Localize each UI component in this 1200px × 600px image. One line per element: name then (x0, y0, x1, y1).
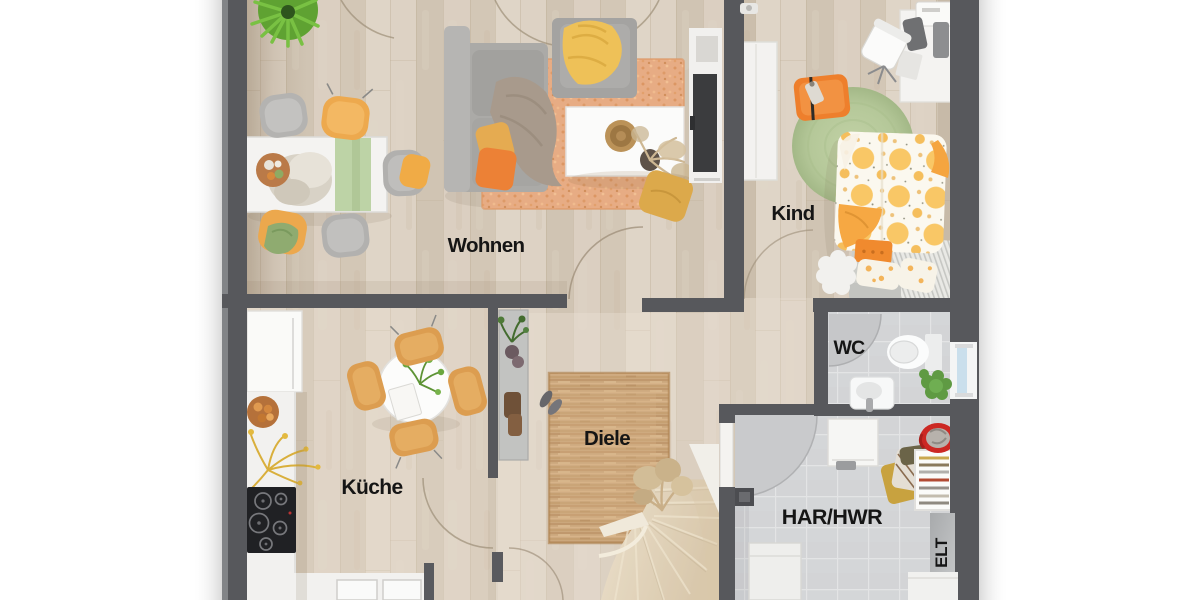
svg-text:ELT: ELT (932, 537, 951, 568)
svg-text:Diele: Diele (584, 427, 630, 450)
svg-text:Küche: Küche (341, 476, 402, 499)
svg-text:WC: WC (834, 337, 866, 359)
svg-text:Wohnen: Wohnen (448, 234, 525, 257)
svg-text:Kind: Kind (771, 202, 814, 225)
svg-text:HAR/HWR: HAR/HWR (782, 505, 883, 529)
